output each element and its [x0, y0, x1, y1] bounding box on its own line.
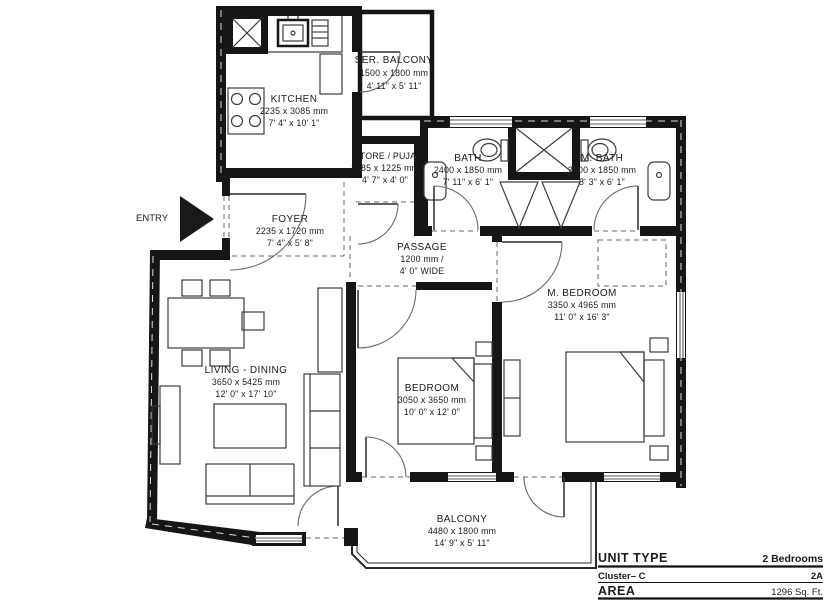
room-label-store: STORE / PUJA 1385 x 1225 mm 4' 7" x 4' 0… — [351, 151, 419, 185]
m-nightstand-top — [650, 338, 668, 352]
room-dim-ft: 14' 9" x 5' 11" — [434, 538, 489, 548]
room-dim-mm: 1385 x 1225 mm — [351, 163, 419, 173]
entry-label: ENTRY — [136, 213, 169, 224]
fridge — [320, 54, 342, 94]
room-name: KITCHEN — [271, 94, 318, 105]
floor-plan-page: ENTRY SER. BALCONY 1500 x 1800 mm 4' 11"… — [0, 0, 828, 607]
sofa — [206, 464, 294, 504]
room-dim-ft: 4' 11" x 5' 11" — [367, 81, 422, 91]
m-bedroom-furniture — [504, 338, 668, 460]
room-dim-ft: 7' 11" x 6' 1" — [443, 177, 493, 187]
linen-triangle-right — [542, 182, 580, 228]
room-dim-ft: 7' 4" x 10' 1" — [268, 118, 319, 128]
room-dim-mm: 2235 x 3085 mm — [260, 106, 328, 116]
unit-type-label: UNIT TYPE — [598, 551, 668, 565]
floor-plan-svg: ENTRY SER. BALCONY 1500 x 1800 mm 4' 11"… — [0, 0, 828, 607]
room-dim-mm: 2400 x 1850 mm — [434, 165, 502, 175]
m-bedroom-balcony-window — [604, 473, 660, 481]
room-label-m-bedroom: M. BEDROOM 3350 x 4965 mm 11' 0" x 16' 3… — [547, 288, 617, 322]
living-window — [256, 535, 302, 543]
linen-triangle-left — [500, 182, 538, 228]
kitchen-sink — [278, 16, 308, 46]
cabinet — [318, 288, 342, 372]
room-name: PASSAGE — [397, 242, 447, 253]
room-dim-ft: 8' 3" x 6' 1" — [579, 177, 625, 187]
nightstand-top — [476, 342, 492, 356]
bedroom-door — [358, 286, 416, 348]
room-name: BEDROOM — [405, 383, 459, 394]
room-name: M. BEDROOM — [547, 288, 617, 299]
nightstand-bottom — [476, 446, 492, 460]
m-blanket-fold — [620, 352, 644, 382]
bedroom-balcony-door — [362, 437, 410, 477]
center-table — [214, 404, 286, 448]
room-dim-mm: 2500 x 1850 mm — [568, 165, 636, 175]
shaft-kitchen — [226, 12, 268, 54]
store-door — [356, 202, 414, 244]
room-dim-ft: 12' 0" x 17' 10" — [215, 389, 276, 399]
living-balcony-door — [298, 486, 344, 538]
room-label-bedroom: BEDROOM 3050 x 3650 mm 10' 0" x 12' 0" — [398, 383, 466, 417]
room-label-kitchen: KITCHEN 2235 x 3085 mm 7' 4" x 10' 1" — [260, 94, 328, 128]
room-name: FOYER — [272, 214, 308, 225]
m-bed — [566, 352, 644, 442]
dresser — [504, 360, 520, 436]
room-dim-mm: 3050 x 3650 mm — [398, 395, 466, 405]
room-dim-ft: 11' 0" x 16' 3" — [554, 312, 609, 322]
room-dim-ft: 10' 0" x 12' 0" — [404, 407, 460, 417]
area-label: AREA — [598, 584, 635, 598]
room-label-balcony: BALCONY 4480 x 1800 mm 14' 9" x 5' 11" — [428, 514, 496, 548]
wardrobe-dashed — [598, 240, 666, 286]
dish-rack — [312, 20, 328, 46]
m-bath-basin — [648, 162, 670, 200]
room-label-living: LIVING - DINING 3650 x 5425 mm 12' 0" x … — [205, 365, 288, 399]
entry-arrow-icon — [180, 196, 214, 242]
title-block: UNIT TYPE 2 Bedrooms Cluster– C 2A AREA … — [598, 551, 823, 599]
m-bath-door — [594, 186, 638, 231]
bedroom-balcony-window — [448, 473, 496, 481]
room-label-ser-balcony: SER. BALCONY 1500 x 1800 mm 4' 11" x 5' … — [355, 55, 434, 91]
room-dim-mm: 3650 x 5425 mm — [212, 377, 280, 387]
room-dim-mm: 1200 mm / — [400, 254, 444, 264]
dining-set — [168, 280, 264, 366]
room-name: BALCONY — [437, 514, 488, 525]
room-dim-ft: 7' 4" x 5' 8" — [267, 238, 313, 248]
pillows — [474, 364, 492, 438]
m-pillows — [644, 360, 664, 436]
room-name: M. BATH — [581, 153, 624, 164]
hob — [228, 88, 264, 134]
room-label-foyer: FOYER 2235 x 1720 mm 7' 4" x 5' 8" — [256, 214, 324, 248]
m-nightstand-bottom — [650, 446, 668, 460]
m-bath-window — [590, 117, 646, 127]
bath-window — [450, 117, 512, 127]
m-bedroom-side-window — [677, 292, 685, 358]
room-name: BATH — [454, 153, 482, 164]
room-dim-mm: 1500 x 1800 mm — [360, 68, 428, 78]
area-value: 1296 Sq. Ft. — [771, 587, 823, 598]
balcony-railing — [352, 482, 596, 568]
shaft-baths — [516, 128, 572, 172]
room-name: STORE / PUJA — [354, 151, 416, 161]
blanket-fold — [452, 358, 474, 382]
unit-type-value: 2 Bedrooms — [762, 553, 823, 565]
room-label-passage: PASSAGE 1200 mm / 4' 0" WIDE — [397, 242, 447, 276]
room-dim-mm: 2235 x 1720 mm — [256, 226, 324, 236]
room-dim-mm: 4480 x 1800 mm — [428, 526, 496, 536]
cluster-value: 2A — [811, 571, 823, 582]
room-dim-ft: 4' 0" WIDE — [400, 266, 444, 276]
room-name: SER. BALCONY — [355, 55, 434, 66]
room-dim-ft: 4' 7" x 4' 0" — [362, 175, 408, 185]
m-bedroom-balcony-door — [514, 477, 564, 517]
entry-marker: ENTRY — [136, 196, 214, 242]
side-sofa — [304, 374, 340, 486]
cluster-label: Cluster– C — [598, 571, 646, 582]
room-dim-mm: 3350 x 4965 mm — [548, 300, 616, 310]
room-name: LIVING - DINING — [205, 365, 288, 376]
